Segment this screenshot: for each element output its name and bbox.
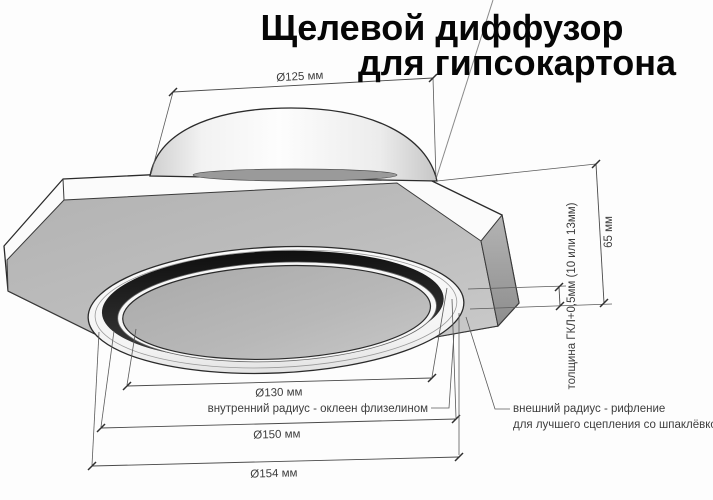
outer-radius-note-line1: внешний радиус - рифление <box>513 403 665 415</box>
outer-radius-note-line2: для лучшего сцепления со шпаклёвкой <box>513 419 713 431</box>
inner-radius-note: внутренний радиус - оклеен флизелином <box>208 403 429 415</box>
dome-base-gap <box>193 169 397 181</box>
diffuser-drawing: Ø125 мм 65 мм толщина ГКЛ+0,5мм (10 или … <box>0 0 713 500</box>
page-title-line2: для гипсокартона <box>358 42 677 83</box>
slot-diameter-label: Ø150 мм <box>253 428 301 441</box>
duct-diameter-label: Ø125 мм <box>276 70 324 84</box>
note-outer-radius: внешний радиус - рифление для лучшего сц… <box>466 317 713 431</box>
board-thickness-label: толщина ГКЛ+0,5мм (10 или 13мм) <box>566 202 578 389</box>
technical-drawing-page: Ø125 мм 65 мм толщина ГКЛ+0,5мм (10 или … <box>0 0 713 500</box>
height-label: 65 мм <box>603 216 615 248</box>
outer-diameter-label: Ø154 мм <box>250 467 298 480</box>
inner-disc-label: Ø130 мм <box>255 386 303 399</box>
